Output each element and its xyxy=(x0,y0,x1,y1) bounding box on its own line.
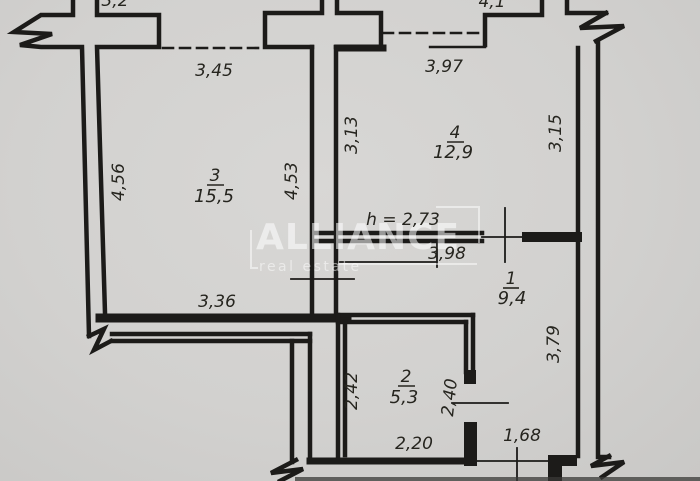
break-mark-left-wall xyxy=(89,329,111,350)
wall-room2-right xyxy=(466,315,473,372)
dim-room2-right: 2,40 xyxy=(438,378,462,418)
dim-top-edge-left: 3,2 xyxy=(101,0,128,11)
room2-number: 2 xyxy=(401,367,412,387)
dim-top-edge-right: 4,1 xyxy=(478,0,505,12)
watermark-tagline: real estate xyxy=(259,259,362,275)
room1-area: 9,4 xyxy=(498,288,527,309)
dim-room3-bottom: 3,36 xyxy=(198,292,236,312)
watermark: ALLIANCE real estate xyxy=(251,207,479,275)
dim-hall-right: 3,79 xyxy=(544,325,564,363)
dim-hall-top: 3,98 xyxy=(428,244,466,264)
wall-lower-a xyxy=(112,334,310,341)
room2-area: 5,3 xyxy=(390,387,419,408)
dim-ceiling-height: h = 2,73 xyxy=(366,210,440,230)
dim-room3-right: 4,53 xyxy=(282,162,302,200)
room3-area: 15,5 xyxy=(194,186,234,207)
wall-room2-top xyxy=(338,315,473,322)
dim-entry-width: 1,68 xyxy=(503,426,541,446)
door-jamb-upper xyxy=(464,370,476,384)
pier-top-left-inner xyxy=(97,0,159,313)
dim-room4-right: 3,15 xyxy=(546,114,566,152)
wall-right-outer xyxy=(598,42,609,457)
pier-top-left-outer xyxy=(14,0,89,336)
photo-edge-shadow xyxy=(295,477,700,481)
wall-corridor-left xyxy=(292,334,310,462)
floor-plan-svg: ALLIANCE real estate 3,2 4,1 3,45 3,97 4… xyxy=(0,0,700,481)
pier-top-middle xyxy=(265,0,381,47)
room4-area: 12,9 xyxy=(433,142,473,163)
break-mark-top-right xyxy=(580,13,624,41)
floor-plan: ALLIANCE real estate 3,2 4,1 3,45 3,97 4… xyxy=(0,0,700,481)
dim-room3-top: 3,45 xyxy=(195,61,233,81)
dim-room4-top: 3,97 xyxy=(425,57,463,77)
room3-number: 3 xyxy=(210,166,221,186)
dim-room3-left: 4,56 xyxy=(109,163,129,201)
dim-room2-bottom: 2,20 xyxy=(395,434,433,454)
wall-bottom-right-segment xyxy=(548,455,577,466)
dim-room4-left: 3,13 xyxy=(342,116,362,154)
room1-number: 1 xyxy=(506,269,517,289)
dim-room2-left: 2,42 xyxy=(342,372,362,410)
room4-number: 4 xyxy=(450,123,461,143)
